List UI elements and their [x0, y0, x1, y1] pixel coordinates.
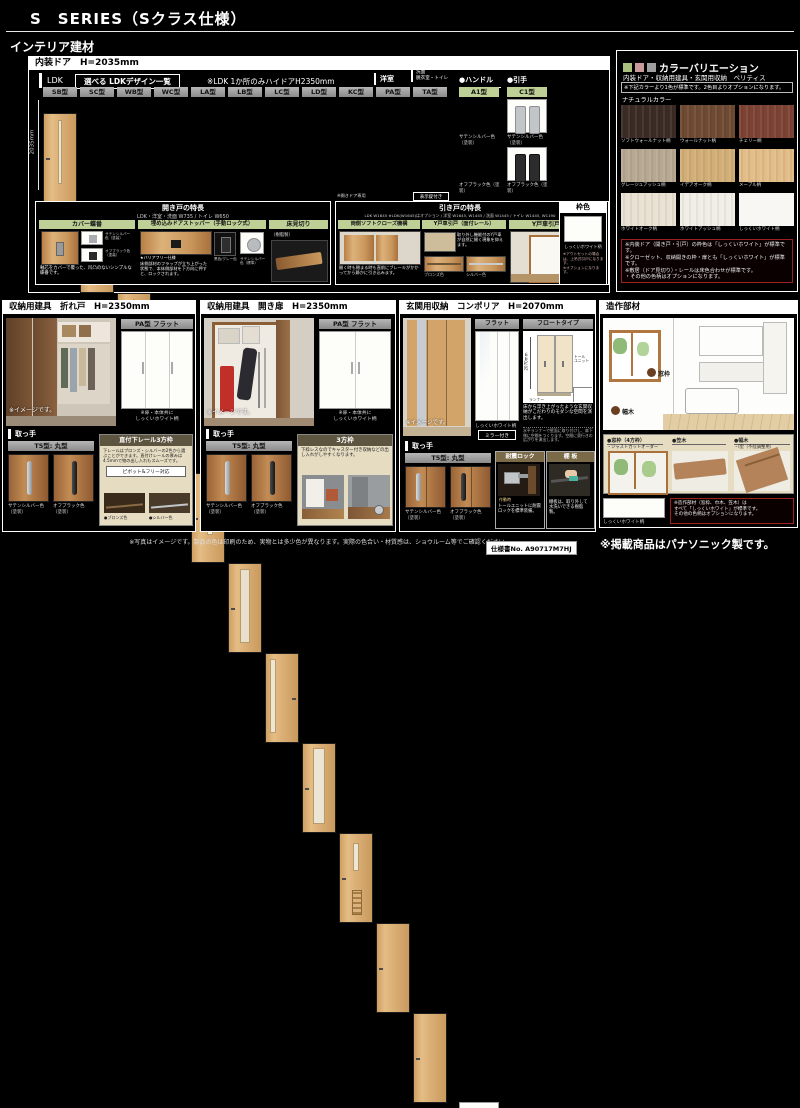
color-variation-note: ※内装ドア（開き戸・引戸）の枠色は「しっくいホワイト」が標準です。 ※クローゼッ…: [621, 239, 793, 283]
entrance-panel: 玄関用収納 コンポリア H=2070mm ※イメージです。 フラット しっくいホ…: [399, 300, 596, 532]
threeframe-photo2: [348, 475, 390, 519]
frame-color-title: 枠色: [560, 202, 606, 213]
storage-hinged-panel-note: ※扉・本体共に しっくいホワイト柄: [319, 411, 391, 423]
swatch-greige-ash-label: グレージュアッシュ柄: [621, 183, 677, 189]
stopper-black-label: 黒色/グレー色: [214, 257, 238, 261]
pull-c1-black-label: オフブラック色（塗装）: [507, 183, 549, 194]
quake-lock-photo-label: 作動時: [499, 497, 511, 503]
shelf-photo: [549, 464, 590, 496]
ldk-label: LDK: [47, 76, 63, 85]
storage-hinged-panel: 収納用建具 開き扉 H=2350mm ※イメージです。 PA型 フラット ※扉・…: [200, 300, 396, 532]
storage-hinged-title: 収納用建具 開き扉 H=2350mm: [201, 301, 395, 314]
threeframe-text: 下枠レスなのでキャスター付き収納などの出し入れがしやすくなります。: [298, 446, 392, 461]
swatch-shikkui-white: [739, 193, 794, 226]
storage-folding-title: 収納用建具 折れ戸 H=2350mm: [3, 301, 195, 314]
storage-folding-door-image: [121, 331, 193, 409]
storage-folding-photo: ※イメージです。: [6, 318, 116, 426]
swatch-white-ash: [680, 193, 735, 226]
y-rail-bronze-label: ブロンズ色: [424, 272, 444, 278]
hinge-photo: [41, 231, 79, 265]
soft-close-title: 両側ソフトクローズ機構: [338, 220, 420, 229]
spec-number: 仕様書No. A90717M7HJ: [486, 541, 577, 555]
section-title: インテリア建材: [10, 38, 94, 55]
swatch-white-oak-label: ホワイトオーク柄: [621, 227, 677, 233]
shelf-box: 棚 板 棚板は、取り外して水洗いできる樹脂製。: [546, 451, 595, 529]
storage-folding-color2-label: オフブラック色 （塗装）: [53, 504, 95, 515]
entrance-handle-black: [450, 466, 491, 508]
parts-illustration: 窓枠 幅木: [603, 318, 794, 430]
parts-panel: 造作部材 窓枠 幅木 ●窓枠（4方枠） ・ジャストカットオーダー ●笠木 ●幅木…: [599, 300, 798, 528]
storage-hinged-handle-type: T5型: 丸型: [206, 441, 292, 451]
entrance-image-note: ※イメージです。: [406, 418, 448, 426]
rail-bronze-label: ●ブロンズ色: [104, 515, 127, 521]
door-type-label: SC型: [80, 87, 114, 97]
entrance-float-runner-label: ランナー: [529, 397, 544, 403]
y-rail-silver-image: [466, 256, 506, 272]
rail-bronze-photo: [104, 493, 145, 513]
shelf-title: 棚 板: [547, 452, 594, 462]
swatch-white-ash-label: ホワイトアッシュ柄: [680, 227, 736, 233]
color-standard-note: ※下記カラーより1色が標準です。2色目よりオプションになります。: [621, 82, 793, 93]
storage-hinged-photo: ※イメージです。: [204, 318, 314, 426]
quake-lock-title: 耐震ロック: [496, 452, 544, 462]
soft-close-text: 開く時も閉まる時も直前にブレーキがかかってから静かに引き込みます。: [339, 265, 419, 275]
parts-item-window-photo: [608, 451, 668, 495]
hinged-features-title: 開き戸の特長: [36, 203, 330, 213]
entrance-float-header: フロートタイプ: [523, 319, 593, 329]
stopper-title: 埋め込みドアストッパー（手動ロック式）: [138, 220, 266, 229]
door-type-label: LD型: [302, 87, 336, 97]
parts-base-label: 幅木: [622, 407, 634, 416]
kc-note: ※開きドア専用: [337, 193, 366, 199]
parts-item-kasagi-photo: [672, 451, 728, 491]
threeframe-photo1: [302, 475, 344, 519]
parts-swatch: [603, 498, 665, 518]
color-square-gray: [647, 63, 656, 72]
threeframe-box: 3方枠 下枠レスなのでキャスター付き収納などの出し入れがしやすくなります。: [297, 434, 393, 526]
interior-door-title: 内装ドア H=2035mm: [29, 57, 609, 70]
door-image-ta: [413, 1013, 447, 1103]
ldk-group-label: LDK: [39, 73, 63, 88]
swatch-softwalnut-label: ソフトウォールナット柄: [621, 139, 677, 145]
entrance-handle-label: 取っ手: [405, 441, 433, 451]
threeframe-title: 3方枠: [298, 435, 392, 446]
floor-trim-title: 床見切り: [269, 220, 328, 229]
parts-title: 造作部材: [600, 301, 797, 314]
sliding-features-subtitle: LDK W1645 ※LDK(W1645)はオプション / 洋室 W1645, …: [336, 213, 584, 219]
pull-c1-header: C1型: [507, 87, 547, 97]
storage-folding-handle-black: [53, 454, 94, 502]
parts-item-window-sub: ・ジャストカットオーダー: [607, 444, 658, 450]
rail-silver-label: ●シルバー色: [149, 515, 173, 521]
entrance-flat-door-image: [475, 331, 519, 421]
swatch-softwalnut: [621, 105, 676, 138]
door-type-label: PA型: [376, 87, 410, 97]
swatch-idea-oak-label: イデアオーク柄: [680, 183, 736, 189]
quake-lock-text: トールユニットに耐震ロックを標準装備。: [498, 504, 541, 514]
storage-folding-handle-type: T5型: 丸型: [8, 441, 94, 451]
hinge-silver-label: サテンシルバー色（塗装）: [105, 232, 133, 240]
door-type-label: TA型: [413, 87, 447, 97]
header-divider: [6, 31, 794, 32]
handle-a1-silver-image: [459, 1102, 499, 1108]
swatch-idea-oak: [680, 149, 735, 182]
entrance-photo: ※イメージです。: [403, 318, 471, 436]
door-type-label: LC型: [265, 87, 299, 97]
hinge-silver-image: [81, 231, 103, 245]
pull-c1-silver-label: サテンシルバー色（塗装）: [507, 135, 549, 146]
door-image-ld: [302, 743, 336, 833]
pull-c1-black-image: [507, 147, 547, 181]
swatch-walnut-label: ウォールナット柄: [680, 139, 736, 145]
storage-folding-type-header: PA型 フラット: [121, 319, 193, 329]
height-dim-line: [38, 100, 39, 190]
handle-a1-black-label: オフブラック色（塗装）: [459, 183, 501, 194]
door-type-label: LA型: [191, 87, 225, 97]
storage-hinged-color1-label: サテンシルバー色 （塗装）: [206, 504, 248, 515]
stopper-silver-image: [240, 232, 264, 254]
floor-trim-photo: [271, 240, 328, 282]
rail-box: 直付下レール3方枠 下レールはブロンズ・シルバーの2色から選ぶことができます。直…: [99, 434, 193, 526]
storage-hinged-handle-label: 取っ手: [206, 429, 234, 439]
swatch-white-oak: [621, 193, 676, 226]
entrance-handle-silver: [405, 466, 446, 508]
swatch-walnut: [680, 105, 735, 138]
door-type-label: SB型: [43, 87, 77, 97]
y-rail-title: Y戸車引戸（面付レール）: [422, 220, 506, 229]
rail-box-badge: ピボット&フリー対応: [106, 466, 186, 477]
swatch-maple-label: メープル柄: [739, 183, 795, 189]
parts-items-box: ●窓枠（4方枠） ・ジャストカットオーダー ●笠木 ●幅木 ・I型（不陸調整用）: [603, 434, 794, 494]
door-image-sb: [43, 113, 77, 203]
parts-note: ※造作部材（窓枠、巾木、笠木）は すべて「しっくいホワイト」が標準です。 その他…: [670, 498, 794, 524]
entrance-flat-badge: ミラー付き: [478, 430, 516, 440]
page-title: S SERIES（Sクラス仕様）: [30, 8, 247, 29]
storage-folding-color1-label: サテンシルバー色 （塗装）: [8, 504, 50, 515]
handle-a1-silver-label: サテンシルバー色（塗装）: [459, 135, 501, 146]
entrance-color1-label: サテンシルバー色 （塗装）: [405, 510, 447, 521]
group-sanitary-label: 洗面 脱衣室・トイレ: [411, 70, 448, 82]
door-type-label: LB型: [228, 87, 262, 97]
door-image-lc: [265, 653, 299, 743]
color-square-pink: [635, 63, 644, 72]
y-rail-bronze-image: [424, 256, 464, 272]
storage-hinged-type-header: PA型 フラット: [319, 319, 391, 329]
storage-hinged-handle-black: [251, 454, 292, 502]
entrance-color2-label: オフブラック色 （塗装）: [450, 510, 492, 521]
storage-folding-handle-label: 取っ手: [8, 429, 36, 439]
swatch-shikkui-white-label: しっくいホワイト柄: [739, 227, 795, 233]
stopper-black-image: [214, 232, 236, 256]
storage-folding-image-note: ※イメージです。: [9, 405, 55, 414]
door-type-label: WB型: [117, 87, 151, 97]
entrance-float-unit-label: トール ユニット: [574, 355, 589, 364]
entrance-float-dim: 2070mm: [523, 353, 528, 371]
storage-hinged-image-note: ※イメージです。: [207, 407, 253, 416]
shelf-text: 棚板は、取り外して水洗いできる樹脂製。: [549, 500, 591, 515]
group-room-label: 洋室: [374, 73, 394, 85]
door-image-lb: [228, 563, 262, 653]
stopper-text: 床側部材のフラップが立ち上がった状態で、本体側部材を下方向に押すと、ロックされま…: [140, 261, 210, 276]
entrance-handle-type: T5型: 丸型: [405, 453, 491, 463]
frame-color-swatch-label: しっくいホワイト柄: [564, 244, 602, 250]
door-image-pa: [376, 923, 410, 1013]
swatch-maple: [739, 149, 794, 182]
y-rail-photo: [424, 232, 456, 252]
stopper-photo: [140, 231, 212, 255]
color-square-green: [623, 63, 632, 72]
sliding-features-box: 引き戸の特長 LDK W1645 ※LDK(W1645)はオプション / 洋室 …: [335, 201, 585, 285]
door-type-label: KC型: [339, 87, 373, 97]
parts-item-kasagi-label: ●笠木: [672, 437, 726, 445]
maker-note: ※掲載商品はパナソニック製です。: [600, 536, 775, 552]
entrance-float-subtext: 水平ランナーで壁面に取り付けし、扉下側に空間をつくります。空間に奥行きの広がりを…: [523, 427, 593, 443]
entrance-float-text: 床から浮き上がったような玄関収納がこだわりのモダンな空間を演出します。: [523, 405, 593, 421]
storage-folding-handle-silver: [8, 454, 49, 502]
hinge-black-image: [81, 248, 103, 262]
y-rail-silver-label: シルバー色: [466, 272, 486, 278]
color-group-label: ナチュラルカラー: [622, 95, 671, 104]
entrance-flat-swatch-label: しっくいホワイト柄: [475, 423, 521, 429]
storage-hinged-door-image: [319, 331, 391, 409]
entrance-float-diagram: 2070mm トール ユニット ランナー: [523, 331, 593, 403]
color-variation-subtitle: 内装ドア・収納用建具・玄関用収納 ベリティス: [623, 72, 766, 82]
handle-a1-header: A1型: [459, 87, 499, 97]
soft-close-photo: [339, 231, 421, 265]
parts-window-label: 窓枠: [658, 369, 670, 378]
swatch-greige-ash: [621, 149, 676, 182]
frame-color-note: ※アウトセットの場合は、上吊式引戸になります。 ※オプションになります。: [563, 252, 605, 275]
rail-box-text: 下レールはブロンズ・シルバーの2色から選ぶことができます。直付けレールの厚みは4…: [100, 446, 192, 465]
door-type-label: WC型: [154, 87, 188, 97]
y-rail-text: 取り外し機能付のY戸車が自然に開く現象を抑えます。: [457, 232, 505, 247]
hinge-black-label: オフブラック色（塗装）: [105, 249, 133, 257]
rail-silver-photo: [149, 493, 190, 513]
pull-c1-silver-image: [507, 99, 547, 133]
storage-hinged-color2-label: オフブラック色 （塗装）: [251, 504, 293, 515]
sliding-features-title: 引き戸の特長: [336, 203, 584, 213]
storage-hinged-handle-silver: [206, 454, 247, 502]
storage-folding-panel: 収納用建具 折れ戸 H=2350mm ※イメージです。 PA型 フラット ※扉・…: [2, 300, 196, 532]
storage-folding-panel-note: ※扉・本体共に しっくいホワイト柄: [121, 411, 193, 423]
swatch-cherry: [739, 105, 794, 138]
interior-door-panel: 内装ドア H=2035mm LDK 選べる LDKデザイン一覧 ※LDK 1か所…: [28, 56, 610, 293]
rail-box-title: 直付下レール3方枠: [100, 435, 192, 446]
quake-lock-photo: [498, 464, 540, 496]
door-image-kc: [339, 833, 373, 923]
ldk-note: ※LDK 1か所のみハイドアH2350mm: [207, 76, 335, 87]
ta-badge: 表示錠付き: [413, 192, 449, 201]
floor-trim-note: （樹脂製）: [271, 232, 293, 238]
hinged-features-box: 開き戸の特長 LDK・洋室・洗面 W735 / トイレ W650 カバー蝶番 サ…: [35, 201, 331, 285]
color-variation-panel: カラーバリエーション 内装ドア・収納用建具・玄関用収納 ベリティス ※下記カラー…: [616, 50, 798, 292]
stopper-silver-label: サテンシルバー色（標準）: [240, 257, 268, 265]
quake-lock-box: 耐震ロック 作動時 トールユニットに耐震ロックを標準装備。: [495, 451, 545, 529]
hinge-title: カバー蝶番: [39, 220, 135, 229]
swatch-cherry-label: チェリー柄: [739, 139, 795, 145]
parts-item-base-photo: [734, 451, 790, 491]
entrance-title: 玄関用収納 コンポリア H=2070mm: [400, 301, 595, 314]
hinge-text: 軸芯をカバーで覆った、凹凸のないシンプルな蝶番です。: [40, 266, 134, 277]
hinged-features-subtitle: LDK・洋室・洗面 W735 / トイレ W650: [36, 213, 330, 220]
height-dim-label: 2035mm: [29, 130, 35, 155]
frame-color-box2: 枠色 しっくいホワイト柄 ※アウトセットの場合は、上吊式引戸になります。 ※オプ…: [559, 201, 607, 285]
parts-swatch-label: しっくいホワイト柄: [603, 519, 644, 525]
entrance-flat-header: フラット: [475, 319, 519, 329]
frame-color-swatch: [564, 216, 602, 242]
